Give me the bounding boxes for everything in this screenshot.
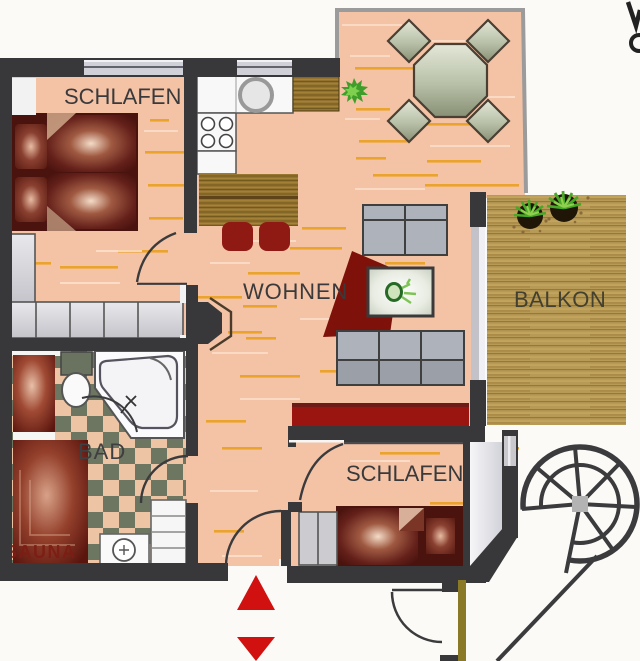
svg-text:SCHLAFEN: SCHLAFEN [346, 461, 463, 486]
svg-text:BALKON: BALKON [514, 287, 606, 312]
svg-text:BAD: BAD [78, 439, 126, 464]
svg-text:SAUNA: SAUNA [5, 542, 77, 562]
svg-text:SCHLAFEN: SCHLAFEN [64, 84, 181, 109]
svg-text:WOHNEN: WOHNEN [243, 279, 348, 304]
